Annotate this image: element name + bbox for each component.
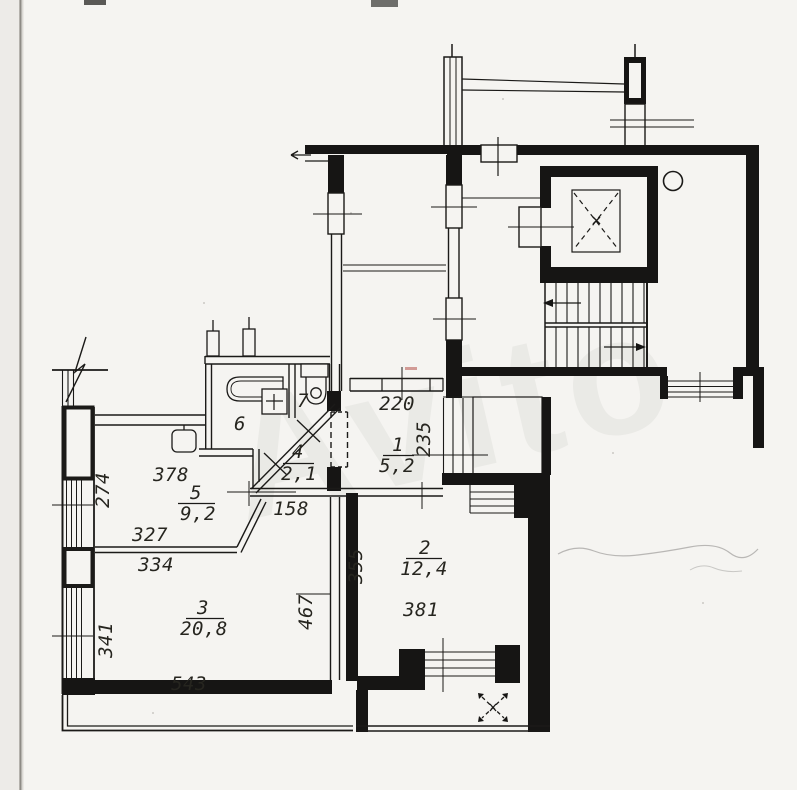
dim-274: 274	[92, 472, 114, 508]
top-wall	[305, 145, 447, 154]
vent-stack-icon	[207, 331, 219, 356]
wall-pier	[65, 549, 93, 586]
room-number: 1	[392, 434, 404, 456]
room-area: 9,2	[180, 503, 216, 525]
dim-341: 341	[95, 622, 117, 659]
room2-left-wall	[346, 493, 358, 681]
room-area: 2,1	[281, 463, 317, 485]
room-number: 5	[190, 482, 202, 504]
door-block	[625, 104, 645, 146]
scan-mark	[84, 0, 106, 5]
scan-mark	[371, 0, 398, 7]
dim-220: 220	[379, 393, 415, 415]
right-outer-wall	[746, 145, 759, 370]
room-area: 20,8	[180, 618, 228, 640]
wall-pier	[65, 408, 93, 479]
floor-plan-drawing: Avito	[0, 0, 797, 790]
top-wall	[517, 145, 759, 155]
room-7-label: 7	[297, 390, 309, 412]
room3-bottom-wall	[93, 680, 332, 694]
room-area: 12,4	[400, 558, 448, 580]
room-number: 2	[419, 537, 431, 559]
dim-334: 334	[137, 554, 174, 576]
dim-378: 378	[152, 464, 189, 486]
room2-right-wall	[528, 485, 550, 732]
dim-327: 327	[131, 524, 168, 546]
dim-381: 381	[402, 599, 439, 621]
stairwell-bottom-wall	[458, 367, 667, 376]
vent-stack-icon	[243, 329, 255, 356]
room-number: 4	[292, 441, 304, 463]
scan-edge-band	[0, 0, 20, 790]
door-block	[481, 145, 517, 162]
dim-355: 355	[345, 548, 367, 585]
right-outer-wall-lower	[753, 376, 764, 448]
room-6-label: 6	[234, 413, 246, 435]
room-number: 3	[196, 597, 209, 619]
scanned-floor-plan: Avito	[0, 0, 797, 790]
dim-543: 543	[171, 673, 207, 695]
sink-icon	[262, 389, 287, 414]
dim-467: 467	[295, 594, 317, 630]
room-area: 5,2	[379, 455, 415, 477]
dim-158: 158	[273, 498, 309, 520]
dim-235: 235	[413, 421, 435, 457]
